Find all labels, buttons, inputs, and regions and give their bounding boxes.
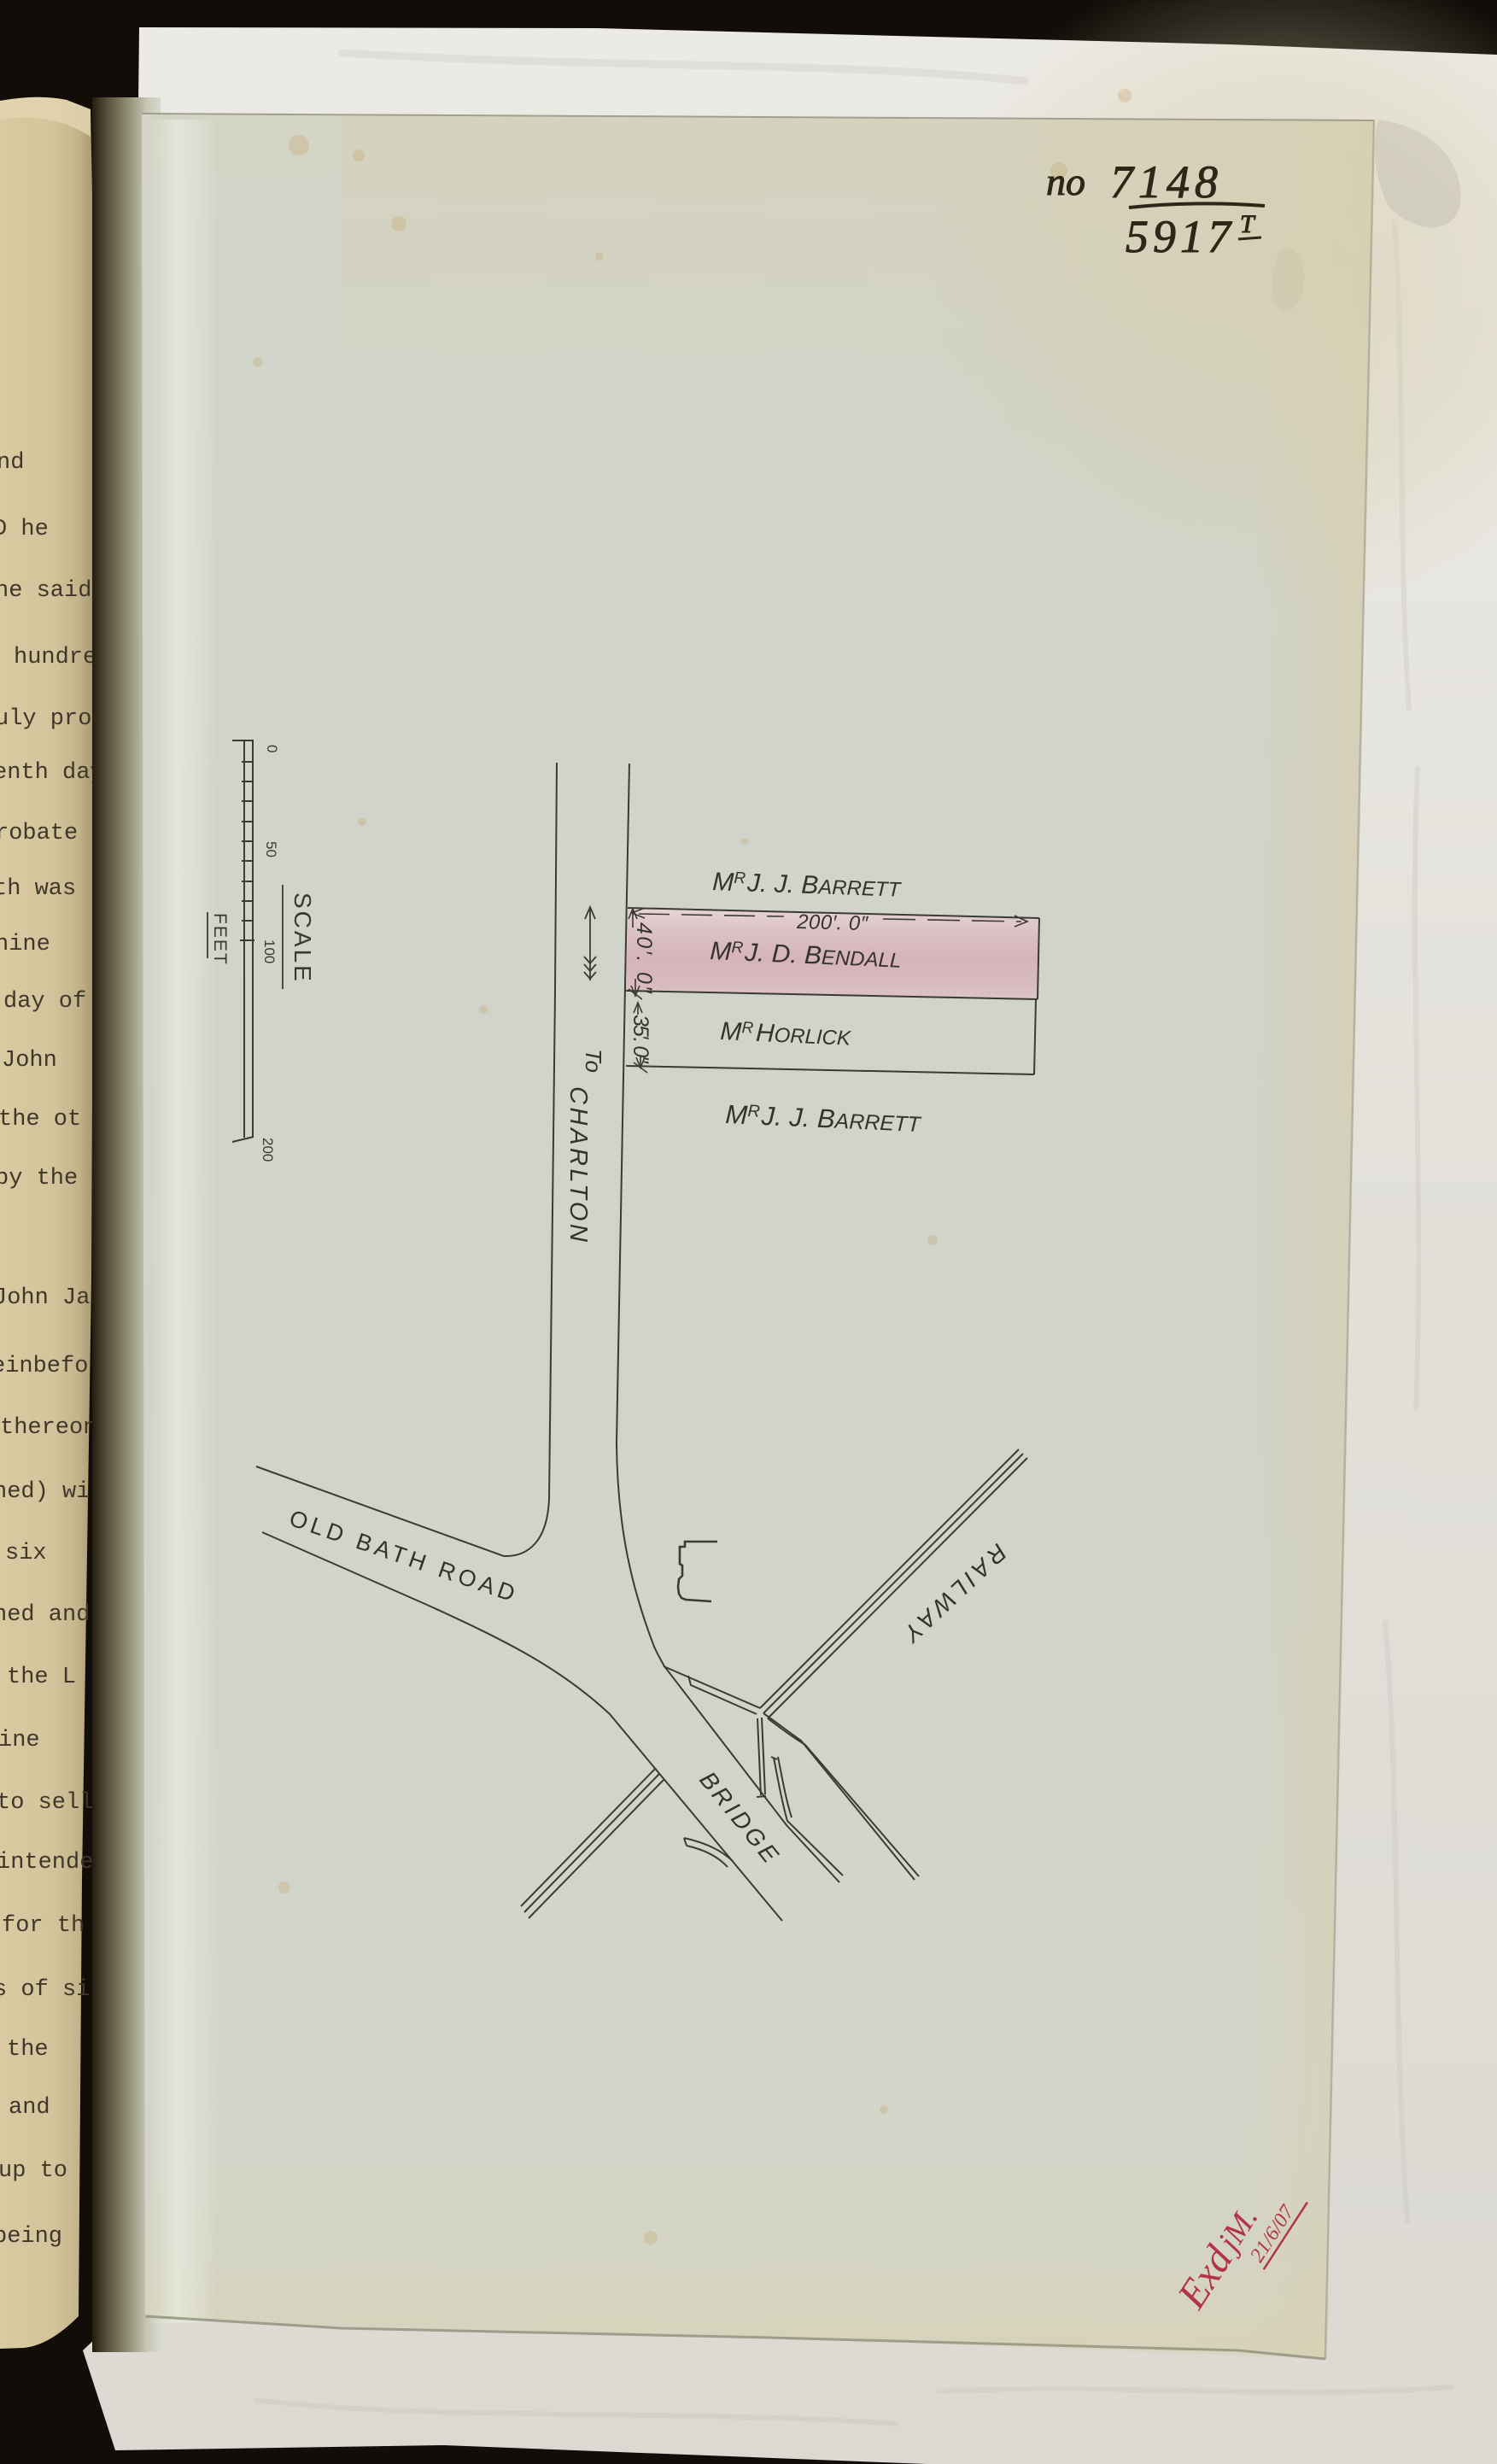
svg-text:T: T xyxy=(1240,210,1256,238)
svg-text:thereon: thereon xyxy=(0,1415,96,1441)
svg-text:th was: th was xyxy=(0,876,76,902)
svg-text:he said: he said xyxy=(0,578,91,604)
svg-text:D he: D he xyxy=(0,517,49,542)
svg-text:50: 50 xyxy=(263,841,279,857)
svg-text:John: John xyxy=(2,1048,57,1074)
svg-text:for th: for th xyxy=(2,1913,85,1939)
svg-text:nine: nine xyxy=(0,932,50,957)
svg-text:s of si: s of si xyxy=(0,1977,90,2003)
svg-text:and: and xyxy=(9,2095,50,2121)
svg-text:0: 0 xyxy=(264,745,280,752)
svg-text:FEET: FEET xyxy=(210,913,230,966)
svg-text:to sell: to sell xyxy=(0,1790,93,1816)
svg-text:the L: the L xyxy=(7,1665,76,1690)
svg-text:einbefo: einbefo xyxy=(0,1354,88,1379)
svg-text:35′. 0″: 35′. 0″ xyxy=(629,1015,652,1064)
svg-text:no: no xyxy=(1046,160,1085,203)
svg-text:robate: robate xyxy=(0,821,78,846)
svg-text:by the: by the xyxy=(0,1166,78,1191)
svg-text:SCALE: SCALE xyxy=(289,893,316,984)
svg-text:uly prov: uly prov xyxy=(0,706,106,732)
svg-text:the ot: the ot xyxy=(0,1107,81,1133)
svg-text:40′. 0″: 40′. 0″ xyxy=(632,922,656,994)
svg-text:the: the xyxy=(7,2037,49,2063)
svg-text:day of: day of xyxy=(3,989,86,1015)
svg-text:ine: ine xyxy=(0,1728,40,1753)
svg-text:ned and: ned and xyxy=(0,1602,90,1628)
svg-text:CHARLTON: CHARLTON xyxy=(564,1086,592,1243)
svg-text:200: 200 xyxy=(260,1138,276,1162)
svg-text:six: six xyxy=(5,1541,47,1566)
svg-text:being: being xyxy=(0,2224,62,2250)
svg-text:ned) wi: ned) wi xyxy=(0,1479,90,1505)
svg-text:To: To xyxy=(581,1049,606,1073)
svg-text:nd: nd xyxy=(0,450,24,476)
svg-text:John Ja: John Ja xyxy=(0,1285,90,1311)
svg-text:intende: intende xyxy=(0,1850,93,1876)
svg-text:200′. 0″: 200′. 0″ xyxy=(796,910,869,935)
svg-text:up to: up to xyxy=(0,2158,67,2184)
svg-text:5917: 5917 xyxy=(1126,211,1235,262)
svg-text:100: 100 xyxy=(261,939,278,963)
svg-text:enth day: enth day xyxy=(0,760,104,786)
svg-text:7148: 7148 xyxy=(1110,156,1223,208)
